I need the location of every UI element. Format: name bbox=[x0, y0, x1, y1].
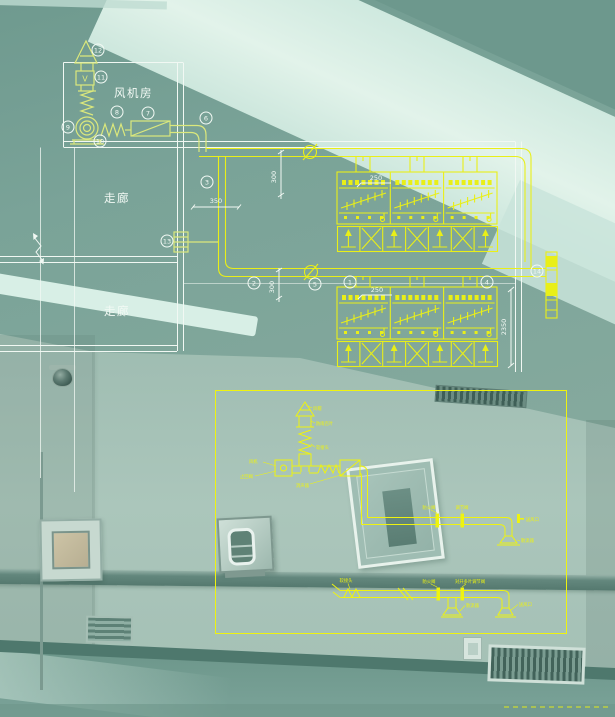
damper-symbol bbox=[303, 144, 317, 160]
label-flex-joint: 软接头 bbox=[316, 444, 330, 451]
fanroom-schematic: V bbox=[70, 41, 218, 252]
exhaust-stack-detail bbox=[275, 402, 360, 476]
detail-labels: 风帽 防雨百叶 软接头 风机 止回阀 消声器 防火阀 调节阀 送风口 散流器 bbox=[240, 405, 539, 611]
label-rain-cap: 风帽 bbox=[313, 405, 322, 412]
dim-duct-width: 350 bbox=[210, 197, 222, 205]
svg-text:12: 12 bbox=[94, 47, 102, 55]
fan-room-label: 风机房 bbox=[114, 86, 153, 100]
flex-connector-horizontal bbox=[101, 124, 125, 136]
label-b-reg-damper: 对开多叶调节阀 bbox=[455, 578, 485, 585]
ahu-filter-bank-row1 bbox=[337, 156, 498, 252]
callout-4: 4 bbox=[481, 276, 493, 288]
svg-text:3: 3 bbox=[205, 179, 209, 187]
duct-run-b bbox=[332, 584, 516, 617]
svg-text:9: 9 bbox=[66, 124, 70, 132]
label-fan: 风机 bbox=[249, 458, 258, 465]
callout-11: 11 bbox=[95, 71, 107, 83]
flex-connector-vertical bbox=[81, 91, 93, 115]
label-b-outlet: 送风口 bbox=[519, 601, 532, 608]
label-rain-louver: 防雨百叶 bbox=[316, 420, 334, 427]
dim-run2-offset: 300 bbox=[268, 281, 276, 293]
ahu-filter-bank-row2 bbox=[337, 276, 498, 367]
callout-1: 1 bbox=[344, 276, 356, 288]
corridor-label-a: 走廊 bbox=[104, 191, 130, 205]
cleanroom-photo-with-cad-overlay: V bbox=[0, 0, 615, 717]
callout-14: 14 bbox=[531, 265, 543, 277]
callout-12: 12 bbox=[92, 44, 104, 56]
callout-8: 8 bbox=[111, 106, 123, 118]
svg-text:7: 7 bbox=[146, 110, 150, 118]
dim-unit2-inlet: 250 bbox=[371, 286, 383, 294]
faint-cad-marks bbox=[504, 706, 608, 708]
room-outline bbox=[0, 63, 522, 493]
svg-text:8: 8 bbox=[115, 109, 119, 117]
callout-13: 13 bbox=[161, 235, 173, 247]
svg-text:5: 5 bbox=[313, 281, 317, 289]
valve-letter: V bbox=[82, 75, 88, 84]
dim-run1-offset: 300 bbox=[270, 171, 278, 183]
riser-duct-14 bbox=[546, 252, 557, 318]
svg-text:11: 11 bbox=[97, 74, 105, 82]
label-check-valve: 止回阀 bbox=[240, 473, 253, 480]
svg-text:13: 13 bbox=[163, 238, 171, 246]
svg-text:1: 1 bbox=[348, 279, 352, 287]
callout-3: 3 bbox=[201, 176, 213, 188]
cad-overlay: V bbox=[0, 0, 615, 717]
svg-text:6: 6 bbox=[204, 115, 208, 123]
dim-unit1-inlet: 250 bbox=[370, 174, 382, 182]
callout-7: 7 bbox=[142, 107, 154, 119]
svg-text:4: 4 bbox=[485, 279, 489, 287]
svg-text:2: 2 bbox=[252, 280, 256, 288]
label-a-outlet: 送风口 bbox=[526, 516, 539, 523]
wall-grille-13 bbox=[174, 232, 218, 252]
svg-text:10: 10 bbox=[96, 138, 104, 146]
duct-run-a bbox=[360, 466, 524, 545]
dim-unit-height: 2350 bbox=[500, 319, 508, 336]
filter-box bbox=[131, 121, 170, 136]
label-b-flex: 软接头 bbox=[340, 577, 354, 584]
label-b-fire-damper: 防火阀 bbox=[423, 578, 436, 585]
callout-6: 6 bbox=[200, 112, 212, 124]
label-a-reg-damper: 调节阀 bbox=[456, 504, 469, 511]
installation-detail-drawing: 风帽 防雨百叶 软接头 风机 止回阀 消声器 防火阀 调节阀 送风口 散流器 bbox=[216, 391, 567, 634]
label-b-diffuser: 散流器 bbox=[466, 602, 480, 609]
corridor-label-b: 走廊 bbox=[104, 304, 130, 318]
callouts: 1 2 3 4 5 6 7 8 9 10 11 12 13 14 bbox=[62, 44, 543, 290]
svg-text:14: 14 bbox=[533, 268, 541, 276]
label-a-fire-damper: 防火阀 bbox=[423, 504, 436, 511]
break-line-symbol bbox=[33, 233, 44, 265]
label-a-diffuser: 散流器 bbox=[521, 537, 535, 544]
label-silencer: 消声器 bbox=[296, 482, 310, 489]
